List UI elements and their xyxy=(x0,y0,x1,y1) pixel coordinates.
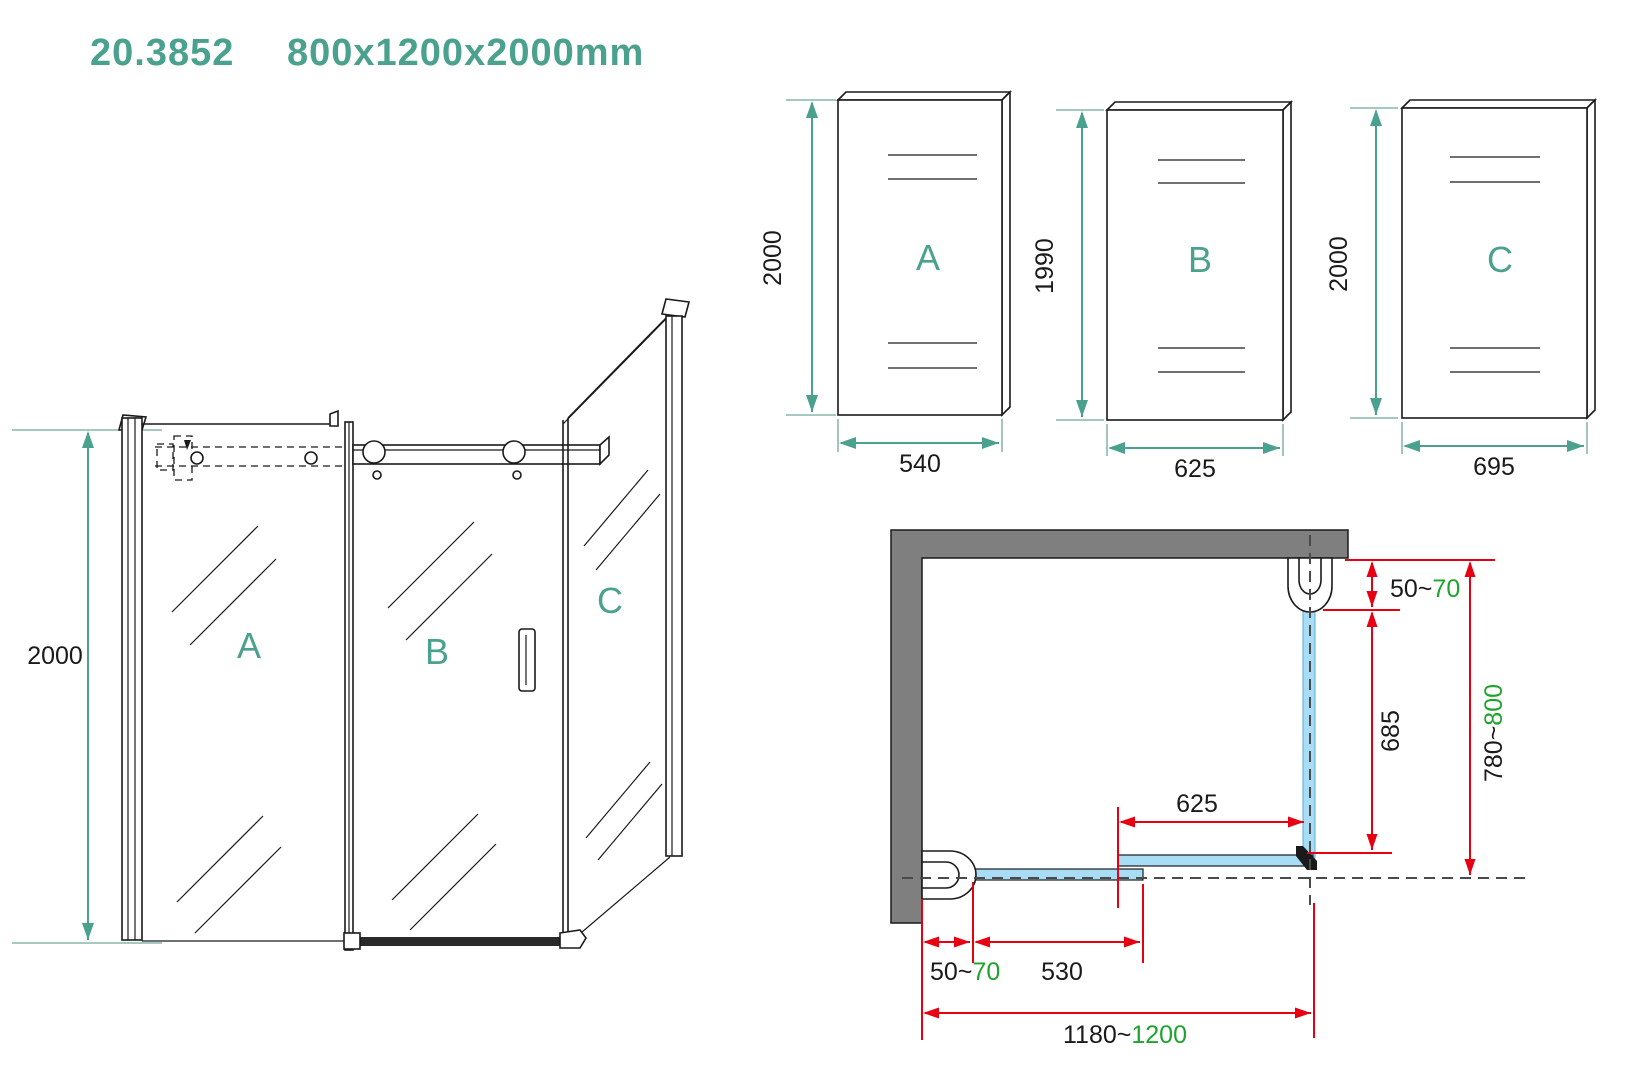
left-wall-clamp xyxy=(922,851,976,899)
roller-stopper xyxy=(373,471,381,479)
glass-reflection-line xyxy=(406,554,492,640)
plan-view: 50~70 685 780~800 625 50~70 530 1180~120… xyxy=(891,530,1530,1049)
top-gap-base: 50~ xyxy=(1390,575,1432,603)
panel-c-view: C 2000 695 xyxy=(1325,100,1595,481)
top-wall-clamp xyxy=(1288,558,1332,612)
height-dimension-label: 2000 xyxy=(27,642,83,670)
sliding-rail-end-cap xyxy=(600,437,609,464)
panel-c-top-bevel xyxy=(1402,100,1595,108)
left-wall-profile xyxy=(122,418,142,940)
glass-reflection-line xyxy=(190,559,276,645)
front-fixed-label: 625 xyxy=(1176,790,1218,818)
panel-b-top-bevel xyxy=(1107,102,1291,110)
panel-b-width-label: 625 xyxy=(1174,455,1216,483)
glass-reflection-line xyxy=(584,470,648,546)
shower-enclosure-technical-drawing: 20.3852 800x1200x2000mm 2000 xyxy=(0,0,1651,1073)
glass-reflection-line xyxy=(172,526,258,612)
side-total-base: 780~ xyxy=(1480,726,1508,782)
glass-reflection-line xyxy=(392,814,478,900)
glass-reflection-line xyxy=(410,844,496,930)
perspective-panel-c-label: C xyxy=(597,580,623,621)
panel-b-height-label: 1990 xyxy=(1031,238,1059,294)
perspective-panel-b-label: B xyxy=(425,631,449,672)
bottom-total-max: 1200 xyxy=(1131,1021,1187,1049)
panel-b-view: B 1990 625 xyxy=(1031,102,1291,483)
glass-reflection-line xyxy=(177,816,263,902)
panel-a-view: A 2000 540 xyxy=(759,92,1010,478)
panel-b-letter: B xyxy=(1188,239,1212,280)
panel-a-width-label: 540 xyxy=(899,450,941,478)
bottom-rail-foot xyxy=(560,930,586,948)
roller-stopper xyxy=(513,471,521,479)
panel-a-letter: A xyxy=(916,237,940,278)
panel-c-height-label: 2000 xyxy=(1325,236,1353,292)
clamp-inner xyxy=(922,862,959,888)
title-block: 20.3852 800x1200x2000mm xyxy=(90,32,644,74)
panel-c-letter: C xyxy=(1487,239,1513,280)
perspective-view: 2000 xyxy=(12,299,689,950)
side-total-max: 800 xyxy=(1480,684,1508,726)
side-glass-label: 685 xyxy=(1377,710,1405,752)
panel-c-top-edge-inner xyxy=(563,319,666,424)
bottom-total-label: 1180~1200 xyxy=(1063,1021,1187,1049)
glass-reflection-line xyxy=(586,762,650,838)
glass-reflections xyxy=(172,470,662,933)
roller-wheel xyxy=(503,441,525,463)
panel-a-height-label: 2000 xyxy=(759,230,787,286)
product-dimensions: 800x1200x2000mm xyxy=(287,32,644,74)
panel-c-bottom-edge xyxy=(568,857,670,944)
model-number: 20.3852 xyxy=(90,32,234,74)
panel-c-top-edge xyxy=(568,314,670,418)
bottom-door-label: 530 xyxy=(1041,958,1083,986)
roller-wheel xyxy=(363,441,385,463)
rail-bolt xyxy=(305,452,317,464)
panel-b-top-tab xyxy=(330,411,338,426)
glass-reflection-line xyxy=(596,494,660,570)
right-profile-cap xyxy=(662,299,689,317)
side-total-label: 780~800 xyxy=(1480,684,1508,782)
fixed-front-glass-plan xyxy=(1118,855,1313,866)
door-bottom-rail xyxy=(355,937,570,946)
drawing-canvas: 20.3852 800x1200x2000mm 2000 xyxy=(0,0,1651,1073)
rail-bolt xyxy=(191,452,203,464)
panel-a-top-bevel xyxy=(838,92,1010,100)
panel-a-side-face xyxy=(1002,92,1010,415)
carrier-arrow-icon xyxy=(184,440,191,450)
glass-reflection-line xyxy=(195,847,281,933)
glass-reflection-line xyxy=(598,784,662,860)
panel-c-width-label: 695 xyxy=(1473,453,1515,481)
bottom-gap-label: 50~70 xyxy=(930,958,1000,986)
bottom-gap-max: 70 xyxy=(972,958,1000,986)
glass-reflection-line xyxy=(388,522,474,608)
panel-c-side-face xyxy=(1587,100,1595,418)
perspective-panel-a-label: A xyxy=(237,625,261,666)
top-gap-label: 50~70 xyxy=(1390,575,1460,603)
panel-b-side-face xyxy=(1283,102,1291,420)
top-gap-max: 70 xyxy=(1432,575,1460,603)
bottom-total-base: 1180~ xyxy=(1063,1021,1131,1049)
bottom-gap-base: 50~ xyxy=(930,958,972,986)
door-handle xyxy=(519,629,535,691)
bottom-rail-foot xyxy=(344,933,360,949)
right-wall-profile xyxy=(666,316,682,856)
